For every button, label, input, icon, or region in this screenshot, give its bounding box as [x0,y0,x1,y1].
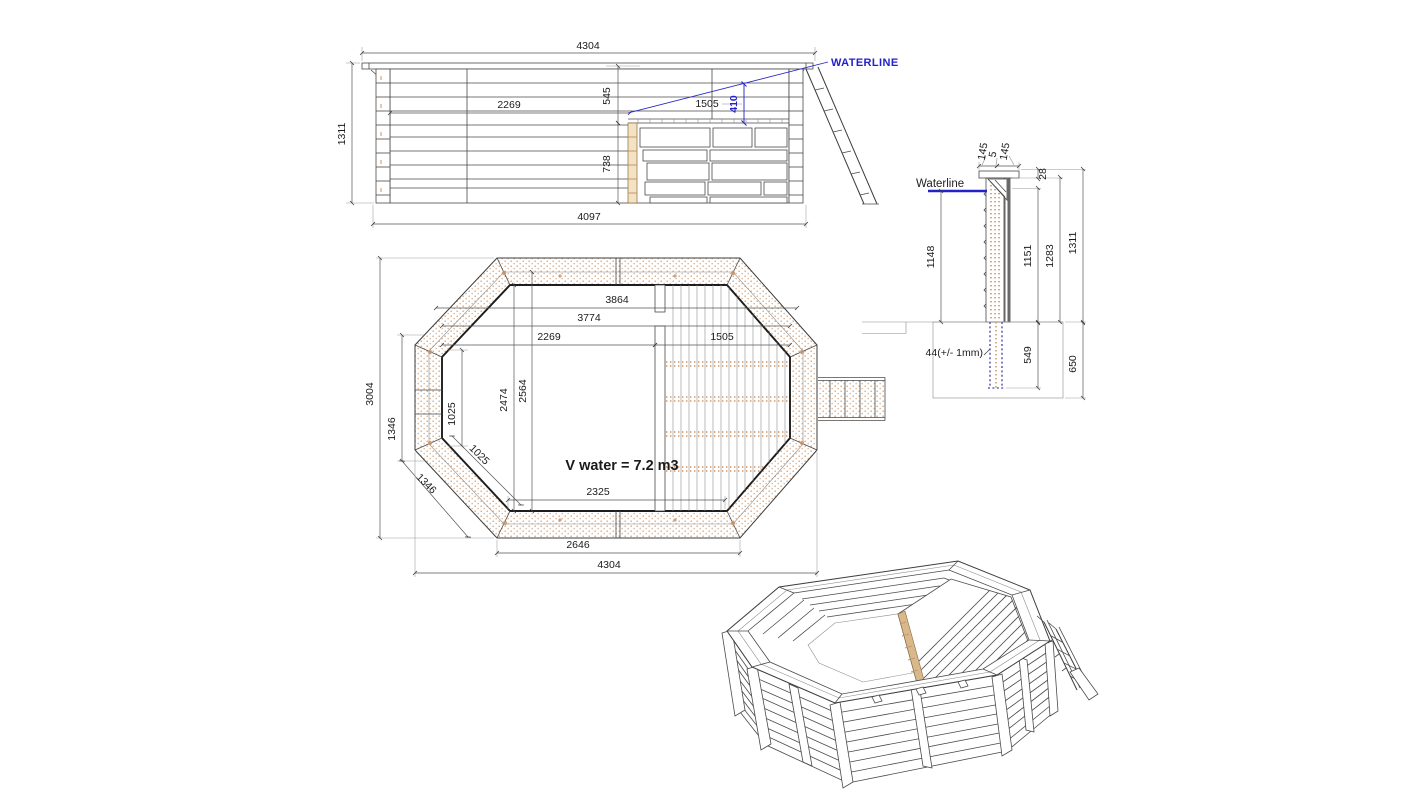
dim-elev-1311: 1311 [336,123,348,146]
dim-sec-549: 549 [1022,346,1034,364]
dim-sec-1283: 1283 [1044,244,1056,268]
left-batten [376,69,390,203]
dim-plan-2325: 2325 [586,486,610,498]
dim-plan-2564: 2564 [517,379,529,403]
drawing-svg: 4304 1311 2269 545 738 1505 410 4097 WAT… [0,0,1422,800]
dim-plan-1346d: 1346 [414,471,439,496]
deck-edge-band [655,285,665,511]
section-cap [979,171,1019,178]
bench-boards [640,128,787,203]
dim-elev-738: 738 [601,155,613,173]
dim-sec-1151: 1151 [1022,245,1034,268]
dim-elev-4097: 4097 [577,211,601,223]
dim-plan-1025v: 1025 [446,402,458,426]
dim-sec-1311: 1311 [1067,232,1079,255]
top-cap [362,63,813,69]
dim-elev-4304: 4304 [576,40,600,52]
water-volume-label: V water = 7.2 m3 [565,458,678,474]
dim-elev-410: 410 [728,95,740,113]
dim-plan-4304: 4304 [597,559,621,571]
dim-sec-28: 28 [1037,168,1049,180]
technical-drawing-canvas: 4304 1311 2269 545 738 1505 410 4097 WAT… [0,0,1422,800]
waterline-label-section: Waterline [916,178,964,190]
dim-plan-1346v: 1346 [386,417,398,441]
dim-elev-2269: 2269 [497,99,521,111]
dim-sec-1148: 1148 [925,246,937,269]
dim-plan-3004: 3004 [364,382,376,406]
isometric-view [722,561,1153,788]
deck-post [628,123,637,203]
cross-section-view: Waterline 145 5 145 28 1151 1283 1311 [862,142,1086,398]
dim-plan-1025d: 1025 [467,442,492,467]
right-batten [789,69,803,203]
plan-ladder [818,378,885,421]
dim-plan-1505: 1505 [710,331,734,343]
waterline-label-elevation: WATERLINE [831,57,899,69]
dim-plan-2646: 2646 [566,539,590,551]
dim-plan-3774: 3774 [577,312,601,324]
side-elevation-view: 4304 1311 2269 545 738 1505 410 4097 WAT… [336,40,899,228]
plan-view: 3864 3774 2269 1505 2564 2474 1025 1025 … [364,258,885,577]
dim-elev-1505: 1505 [695,98,719,110]
dim-plan-2269: 2269 [537,331,561,343]
dim-elev-545: 545 [601,87,613,105]
dim-sec-plank: 44(+/- 1mm) [926,347,983,359]
dim-sec-650: 650 [1067,355,1079,373]
elevation-ladder [806,67,879,204]
dim-plan-3864: 3864 [605,294,629,306]
dim-plan-2474: 2474 [498,388,510,412]
